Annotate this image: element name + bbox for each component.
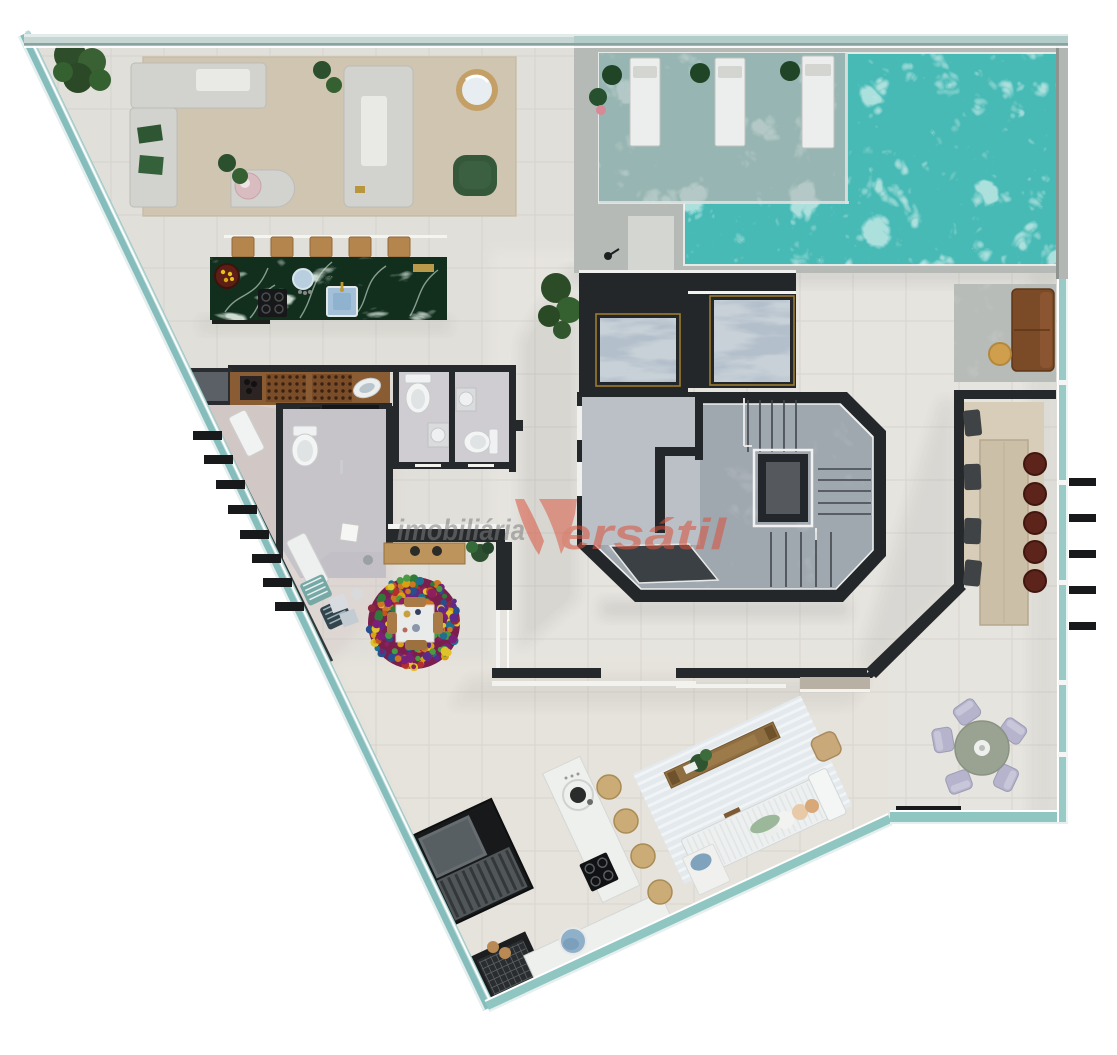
svg-text:imobiliária: imobiliária (397, 514, 525, 547)
svg-text:ersátil: ersátil (560, 510, 727, 559)
